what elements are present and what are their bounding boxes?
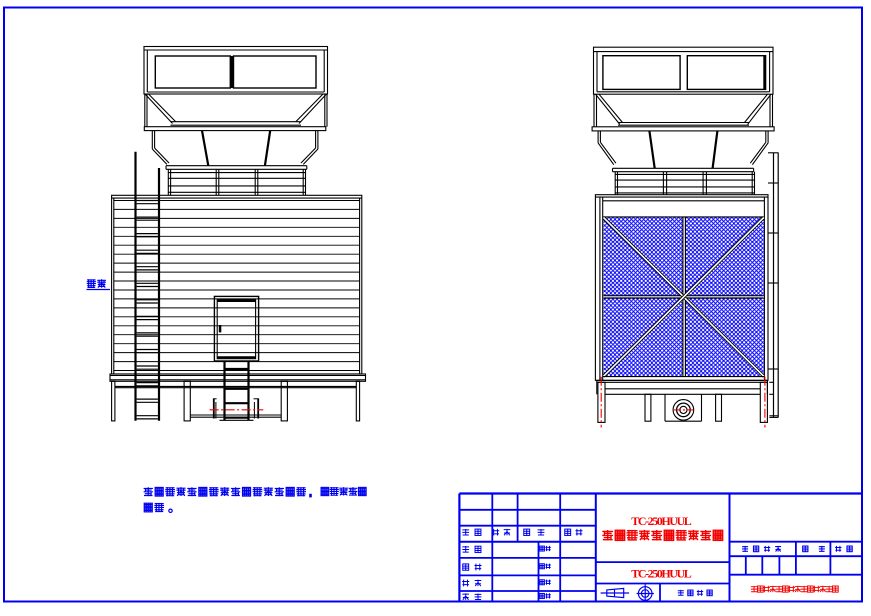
svg-text:TC-250HUUL: TC-250HUUL bbox=[631, 566, 692, 580]
svg-text:TC-250HUUL: TC-250HUUL bbox=[631, 514, 692, 528]
